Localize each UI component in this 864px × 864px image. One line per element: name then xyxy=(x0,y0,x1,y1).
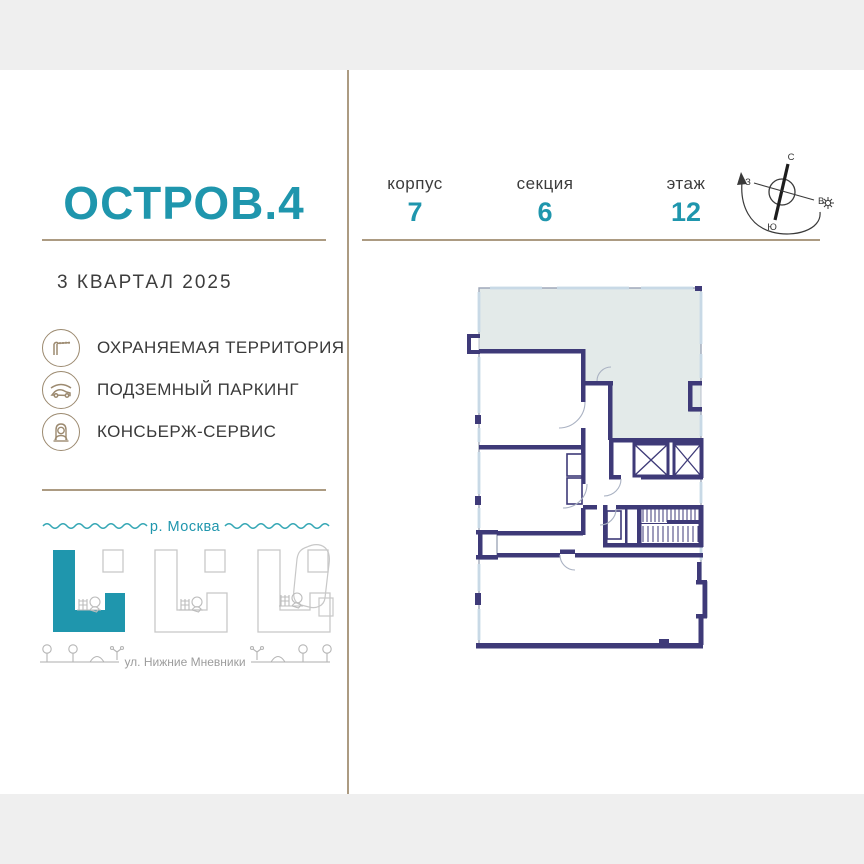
building-2 xyxy=(155,550,227,632)
stat-label: секция xyxy=(480,174,610,194)
tree-icon xyxy=(69,645,77,662)
tree-icon xyxy=(43,645,51,662)
building-4-outline xyxy=(294,545,333,616)
amenity-item: ПОДЗЕМНЫЙ ПАРКИНГ xyxy=(42,371,299,409)
compass-north: С xyxy=(788,152,795,163)
letterbox-bottom xyxy=(0,794,864,864)
amenity-item: КОНСЬЕРЖ-СЕРВИС xyxy=(42,413,276,451)
vertical-divider xyxy=(347,70,349,794)
amenity-label: ОХРАНЯЕМАЯ ТЕРРИТОРИЯ xyxy=(97,338,344,358)
brand-title: ОСТРОВ.4 xyxy=(38,176,330,230)
amenity-label: КОНСЬЕРЖ-СЕРВИС xyxy=(97,422,276,442)
floor-plan xyxy=(445,262,745,662)
stat-value: 7 xyxy=(350,197,480,228)
street-label: ул. Нижние Мневники xyxy=(124,655,245,669)
playground-icon xyxy=(77,597,101,612)
stat-korpus: корпус 7 xyxy=(350,174,480,228)
bush-icon xyxy=(90,657,104,663)
stat-value: 6 xyxy=(480,197,610,228)
sprout-icon xyxy=(251,647,264,661)
header-divider xyxy=(362,239,820,241)
bush-icon xyxy=(271,657,285,663)
tree-icon xyxy=(299,645,307,662)
brand-underline xyxy=(42,239,326,241)
amenity-item: ОХРАНЯЕМАЯ ТЕРРИТОРИЯ xyxy=(42,329,344,367)
tree-icon xyxy=(323,645,331,662)
amenity-label: ПОДЗЕМНЫЙ ПАРКИНГ xyxy=(97,380,299,400)
staircase xyxy=(641,508,701,542)
compass-south: Ю xyxy=(767,222,777,233)
playground-icon xyxy=(279,593,303,608)
floorplan-card: ОСТРОВ.4 3 КВАРТАЛ 2025 ОХРАНЯЕМАЯ ТЕРРИ… xyxy=(0,0,864,864)
stat-sektsiya: секция 6 xyxy=(480,174,610,228)
car-icon xyxy=(42,371,80,409)
river-label: р. Москва xyxy=(150,519,221,535)
playground-icon xyxy=(179,597,203,612)
building-1-highlighted xyxy=(53,550,125,632)
elevator-shafts xyxy=(634,444,701,476)
highlighted-apartment xyxy=(479,288,701,439)
sitemap-divider xyxy=(42,489,326,491)
compass-icon: С Ю З В xyxy=(732,148,840,244)
compass-east: В xyxy=(818,196,824,207)
sprout-icon xyxy=(111,647,124,661)
compass-west: З xyxy=(745,177,751,188)
concierge-icon xyxy=(42,413,80,451)
site-map: р. Москва ул. Нижние Мнев xyxy=(35,500,335,675)
stat-label: корпус xyxy=(350,174,480,194)
completion-date: 3 КВАРТАЛ 2025 xyxy=(57,272,233,294)
letterbox-top xyxy=(0,0,864,70)
barrier-icon xyxy=(42,329,80,367)
